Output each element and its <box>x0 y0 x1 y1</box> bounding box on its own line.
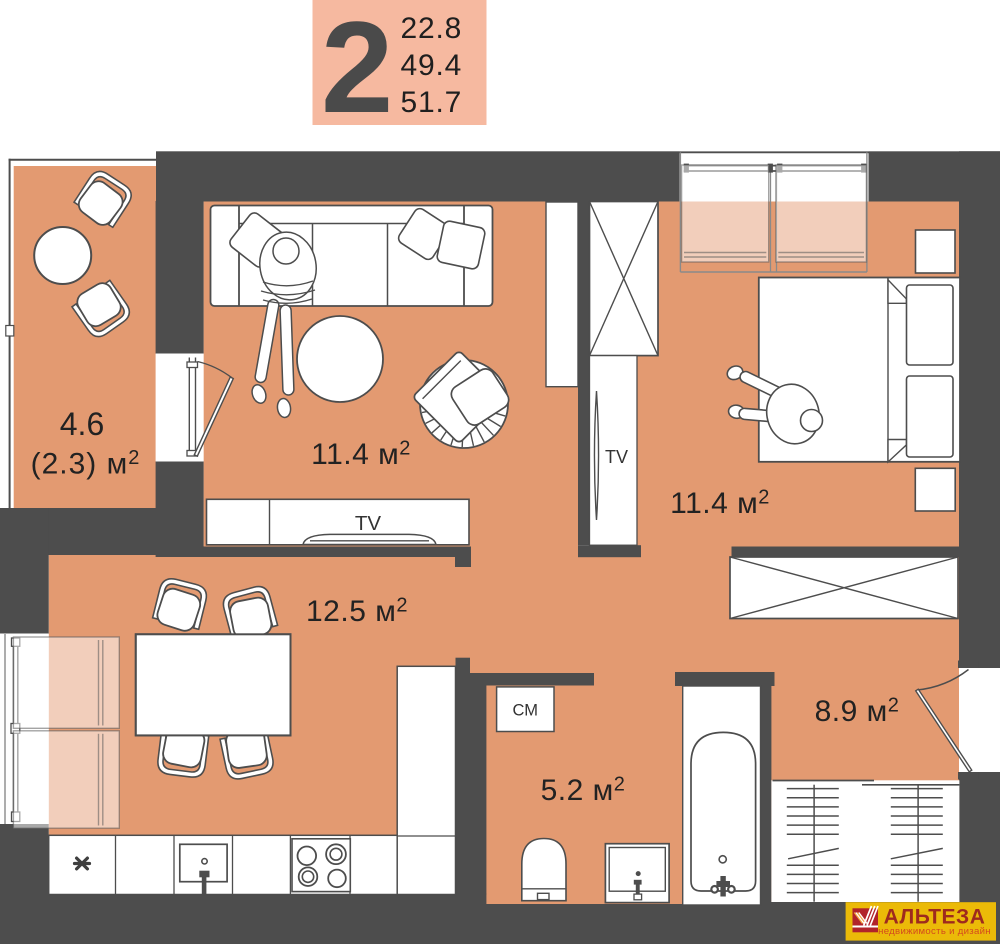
svg-text:49.4: 49.4 <box>401 49 463 82</box>
svg-text:2: 2 <box>321 0 393 140</box>
svg-text:недвижимость и дизайн: недвижимость и дизайн <box>878 926 991 937</box>
svg-text:4.6: 4.6 <box>60 406 104 442</box>
svg-text:12.5 м2: 12.5 м2 <box>306 595 408 629</box>
svg-text:11.4 м2: 11.4 м2 <box>311 438 411 472</box>
svg-text:(2.3) м2: (2.3) м2 <box>31 447 141 481</box>
svg-text:СМ: СМ <box>513 702 538 720</box>
svg-text:8.9 м2: 8.9 м2 <box>815 695 900 729</box>
svg-text:51.7: 51.7 <box>401 86 463 119</box>
svg-text:TV: TV <box>605 447 628 467</box>
svg-text:22.8: 22.8 <box>401 12 463 45</box>
svg-text:11.4 м2: 11.4 м2 <box>670 487 770 521</box>
svg-text:TV: TV <box>355 512 382 535</box>
svg-text:5.2 м2: 5.2 м2 <box>541 774 626 808</box>
